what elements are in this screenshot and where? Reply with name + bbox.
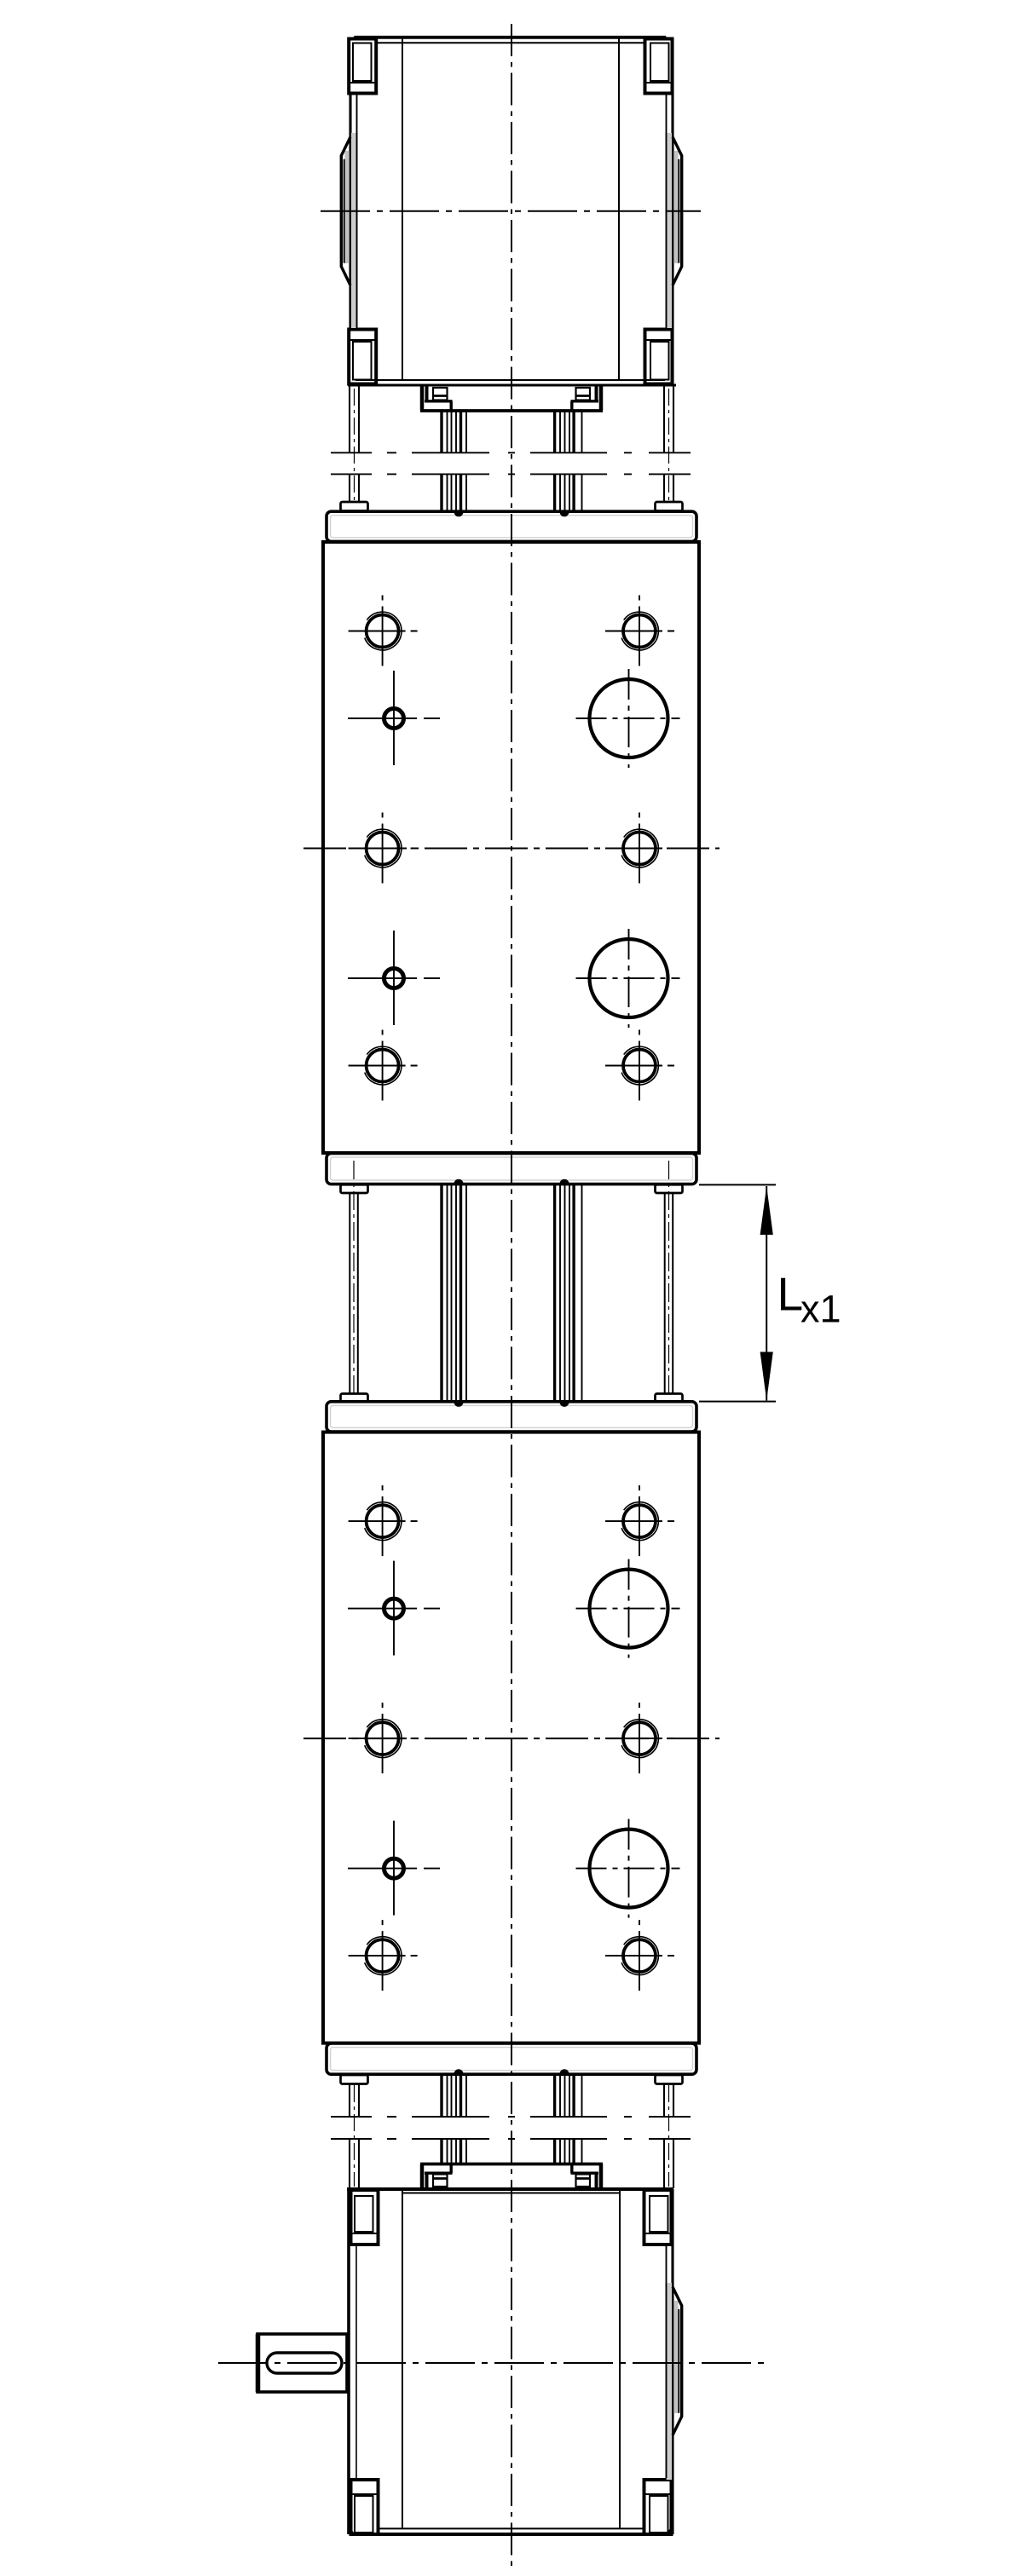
svg-text:L: L [777, 1268, 804, 1321]
svg-text:x1: x1 [800, 1288, 841, 1331]
